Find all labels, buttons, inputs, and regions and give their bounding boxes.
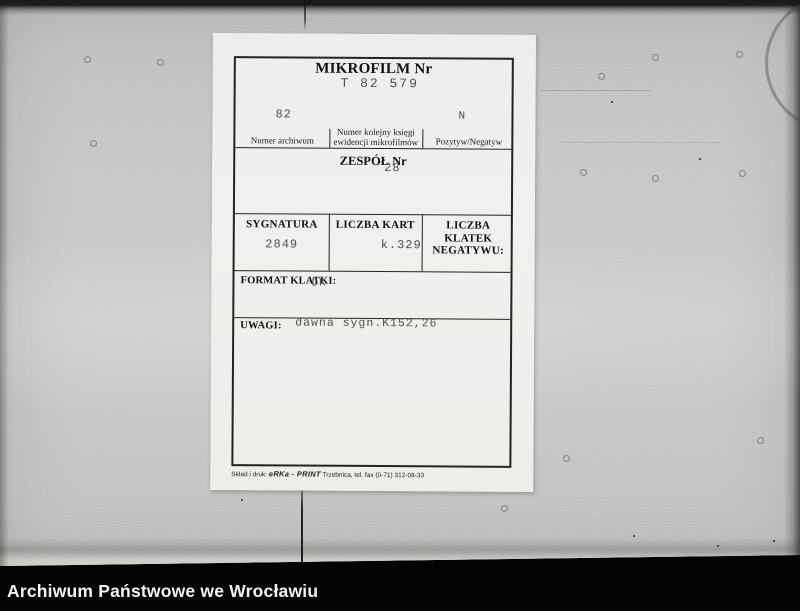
pozytyw-negatyw-label: Pozytyw/Negatyw: [422, 137, 515, 147]
microfilm-index-card: MIKROFILM Nr T 82 579 82 N Numer archiwu…: [210, 33, 536, 492]
print-credit-brand: eRKa - PRINT: [269, 469, 321, 478]
liczba-klatek-label-line1: LICZBA KLATEK: [422, 219, 515, 245]
scratch-arc-mark: [765, 0, 800, 131]
dust-ring: [652, 54, 659, 61]
liczba-klatek-label-line2: NEGATYWU:: [422, 245, 515, 258]
ksiega-ewidencji-label: Numer kolejny księgi ewidencji mikrofilm…: [329, 128, 422, 148]
format-klatki-value: DK: [311, 278, 326, 290]
liczba-kart-label: LICZBA KART: [329, 219, 422, 232]
print-credit-line: Skład i druk: eRKa - PRINT Trzebnica, te…: [231, 469, 511, 480]
dust-ring: [652, 175, 659, 182]
form-table: MIKROFILM Nr T 82 579 82 N Numer archiwu…: [231, 56, 513, 468]
dust-ring: [580, 169, 587, 176]
dust-dot: [699, 158, 701, 160]
ksiega-ewidencji-label-line2: ewidencji mikrofilmów: [329, 138, 422, 148]
dust-dot: [633, 535, 635, 537]
rule: [235, 213, 511, 216]
dust-ring: [563, 455, 570, 462]
print-credit-suffix: Trzebnica, tel. fax (0-71) 312-08-33: [321, 472, 424, 480]
pozytyw-negatyw-value: N: [458, 111, 466, 123]
uwagi-label: UWAGI:: [240, 320, 282, 331]
dust-ring: [598, 73, 605, 80]
fold-line-bottom: [301, 489, 303, 565]
dust-dot: [717, 545, 719, 547]
liczba-kart-value: k.329: [381, 238, 422, 252]
dust-dot: [611, 101, 613, 103]
scanned-photo-background: MIKROFILM Nr T 82 579 82 N Numer archiwu…: [0, 0, 800, 567]
numer-archiwum-label: Numer archiwum: [235, 136, 329, 146]
numer-archiwum-value: 82: [275, 107, 291, 121]
dust-ring: [757, 437, 764, 444]
dust-dot: [773, 540, 775, 542]
uwagi-value: dawna sygn.K152,26: [295, 317, 437, 331]
dust-ring: [84, 56, 91, 63]
zespol-value: 28: [384, 161, 400, 175]
dust-dot: [241, 499, 243, 501]
sygnatura-value: 2849: [235, 237, 329, 252]
microfilm-number-value: T 82 579: [340, 76, 419, 91]
fold-line-top: [304, 0, 306, 30]
dust-ring: [736, 51, 743, 58]
liczba-klatek-label: LICZBA KLATEK NEGATYWU:: [422, 219, 515, 257]
scratch-line: [540, 90, 650, 91]
dust-ring: [739, 170, 746, 177]
rule: [235, 270, 511, 273]
dust-ring: [501, 505, 508, 512]
scratch-line: [560, 142, 720, 143]
print-credit-prefix: Skład i druk:: [231, 471, 269, 478]
sygnatura-label: SYGNATURA: [235, 218, 329, 231]
archive-caption: Archiwum Państwowe we Wrocławiu: [7, 581, 318, 602]
dust-ring: [90, 140, 97, 147]
dust-ring: [157, 59, 164, 66]
zespol-label: ZESPÓŁ Nr: [235, 153, 511, 170]
